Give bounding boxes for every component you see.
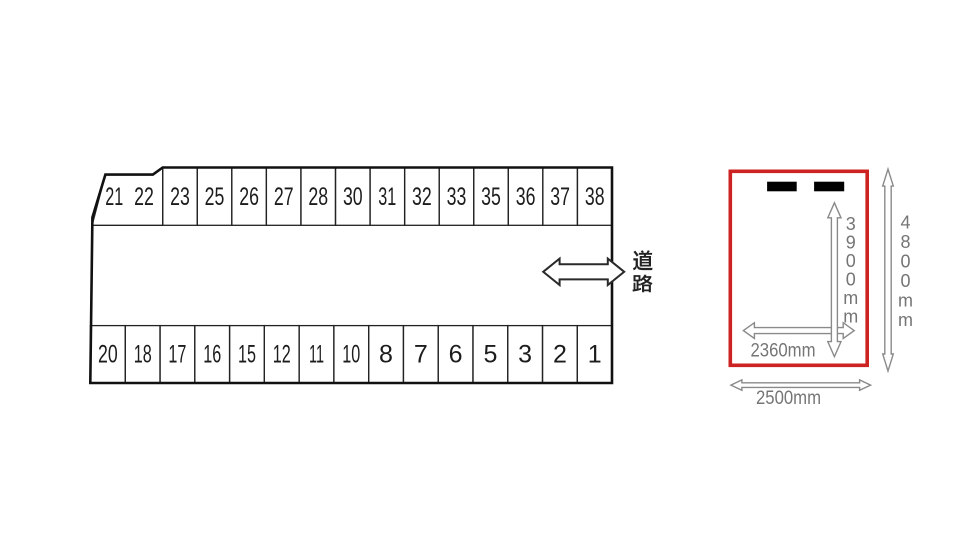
svg-text:31: 31	[378, 183, 396, 211]
svg-text:38: 38	[585, 183, 605, 211]
svg-text:0: 0	[846, 251, 856, 271]
svg-text:3: 3	[846, 214, 856, 234]
svg-text:33: 33	[447, 183, 467, 211]
svg-text:3: 3	[518, 341, 532, 369]
svg-text:1: 1	[588, 341, 602, 369]
svg-text:36: 36	[516, 183, 536, 211]
svg-text:m: m	[898, 290, 913, 310]
svg-text:28: 28	[308, 183, 328, 211]
svg-text:16: 16	[203, 341, 221, 369]
svg-text:2: 2	[553, 341, 567, 369]
svg-text:12: 12	[273, 341, 291, 369]
svg-text:11: 11	[309, 341, 324, 369]
svg-text:4: 4	[900, 212, 910, 232]
svg-text:m: m	[898, 310, 913, 330]
svg-text:2360mm: 2360mm	[751, 341, 816, 362]
svg-text:15: 15	[238, 341, 256, 369]
svg-text:0: 0	[846, 270, 856, 290]
svg-text:9: 9	[846, 233, 856, 253]
svg-text:18: 18	[134, 341, 152, 369]
svg-text:35: 35	[481, 183, 501, 211]
svg-text:27: 27	[274, 183, 294, 211]
svg-text:8: 8	[379, 341, 393, 369]
svg-text:23: 23	[170, 183, 190, 211]
svg-text:22: 22	[134, 183, 154, 211]
svg-text:m: m	[843, 288, 858, 308]
svg-text:0: 0	[900, 251, 910, 271]
svg-text:10: 10	[342, 341, 360, 369]
svg-text:5: 5	[483, 341, 497, 369]
svg-text:30: 30	[343, 183, 363, 211]
svg-text:32: 32	[412, 183, 432, 211]
svg-text:17: 17	[168, 341, 186, 369]
svg-text:6: 6	[449, 341, 463, 369]
svg-text:20: 20	[98, 341, 118, 369]
svg-text:0: 0	[900, 271, 910, 291]
svg-text:25: 25	[205, 183, 225, 211]
svg-text:8: 8	[900, 232, 910, 252]
svg-text:m: m	[843, 307, 858, 327]
svg-text:21: 21	[105, 183, 123, 211]
svg-text:7: 7	[414, 341, 428, 369]
svg-text:37: 37	[550, 183, 570, 211]
svg-text:2500mm: 2500mm	[756, 388, 821, 409]
svg-text:26: 26	[239, 183, 259, 211]
